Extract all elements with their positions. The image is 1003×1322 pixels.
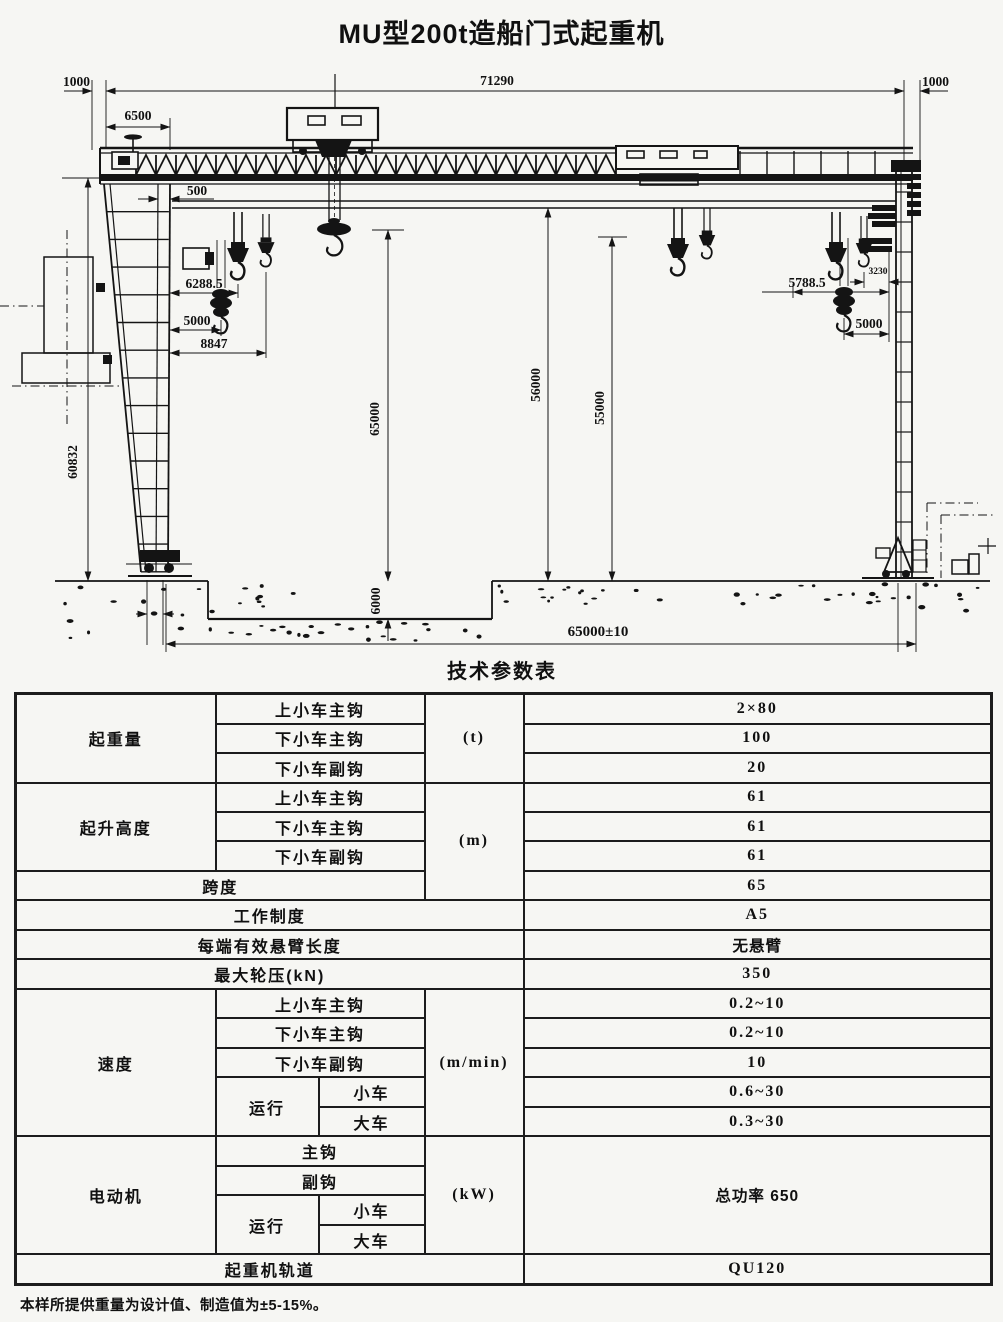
dim-hook-right-small: 3230 <box>869 267 888 277</box>
hook-icon <box>667 208 689 275</box>
table-row: 起重机轨道 QU120 <box>16 1254 992 1284</box>
value-cell: 0.6~30 <box>524 1077 992 1106</box>
value-cell: 0.2~10 <box>524 989 992 1018</box>
group-height: 起升高度 <box>16 783 216 871</box>
table-row: 工作制度 A5 <box>16 900 992 929</box>
table-row: 起重量 上小车主钩 (t) 2×80 <box>16 694 992 724</box>
dim-overall: 71290 <box>480 73 514 88</box>
unit-label: (kW) <box>425 1136 524 1254</box>
item-label: 下小车副钩 <box>216 1048 425 1077</box>
dim-height-mid: 56000 <box>528 368 543 402</box>
table-row: 速度 上小车主钩 (m/min) 0.2~10 <box>16 989 992 1018</box>
value-cell: 61 <box>524 783 992 812</box>
rail-end-stop <box>112 134 142 169</box>
item-travel: 运行 <box>216 1195 319 1254</box>
value-cell: 2×80 <box>524 694 992 724</box>
group-duty: 工作制度 <box>16 900 524 929</box>
lower-runway-beam <box>172 201 896 208</box>
group-rail: 起重机轨道 <box>16 1254 524 1284</box>
right-leg <box>862 160 996 578</box>
group-capacity: 起重量 <box>16 694 216 783</box>
value-cell: 无悬臂 <box>524 930 992 959</box>
main-girder <box>100 148 913 184</box>
item-label: 下小车副钩 <box>216 753 425 782</box>
unit-label: (m/min) <box>425 989 524 1136</box>
value-cell: 61 <box>524 812 992 841</box>
dimensions: 1000 71290 1000 6500 500 6288.5 5000 884… <box>62 73 949 652</box>
item-travel: 运行 <box>216 1077 319 1136</box>
hook-icon <box>227 212 249 279</box>
group-speed: 速度 <box>16 989 216 1136</box>
table-row: 电动机 主钩 (kW) 总功率 650 <box>16 1136 992 1165</box>
dim-overhang-left: 1000 <box>63 74 90 89</box>
dim-rail-offset: 500 <box>187 183 208 198</box>
value-cell: 61 <box>524 841 992 870</box>
group-cantilever: 每端有效悬臂长度 <box>16 930 524 959</box>
value-cell: QU120 <box>524 1254 992 1284</box>
item-label: 大车 <box>319 1225 425 1254</box>
value-cell: 10 <box>524 1048 992 1077</box>
dim-hook-right-aux: 5000 <box>856 316 883 331</box>
value-cell: 65 <box>524 871 992 900</box>
upper-trolley-hook-icon <box>317 218 351 255</box>
dim-height-right: 55000 <box>592 391 607 425</box>
dim-rail-span: 65000±10 <box>568 624 629 640</box>
parameters-table: 起重量 上小车主钩 (t) 2×80 下小车主钩 100 下小车副钩 20 起升… <box>14 692 993 1286</box>
table-row: 起升高度 上小车主钩 (m) 61 <box>16 783 992 812</box>
value-cell: 总功率 650 <box>524 1136 992 1254</box>
item-label: 下小车主钩 <box>216 812 425 841</box>
item-label: 副钩 <box>216 1166 425 1195</box>
group-motor: 电动机 <box>16 1136 216 1254</box>
dim-pit-depth: 6000 <box>368 587 383 614</box>
item-label: 下小车主钩 <box>216 1018 425 1047</box>
item-label: 上小车主钩 <box>216 783 425 812</box>
ground <box>55 581 990 642</box>
left-leg <box>96 184 214 645</box>
value-cell: 20 <box>524 753 992 782</box>
dim-hoist-mid: 65000 <box>367 402 382 436</box>
item-label: 小车 <box>319 1195 425 1224</box>
item-label: 下小车主钩 <box>216 724 425 753</box>
item-label: 下小车副钩 <box>216 841 425 870</box>
dim-hook-left-outer: 8847 <box>201 336 228 351</box>
value-cell: 0.3~30 <box>524 1107 992 1136</box>
unit-label: (t) <box>425 694 524 783</box>
dim-hook-left-main: 6288.5 <box>185 276 222 291</box>
dim-trolley-park: 6500 <box>125 108 152 123</box>
table-title: 技术参数表 <box>14 655 990 684</box>
dim-overhang-right: 1000 <box>922 74 949 89</box>
value-cell: 0.2~10 <box>524 1018 992 1047</box>
value-cell: 350 <box>524 959 992 988</box>
table-row: 最大轮压(kN) 350 <box>16 959 992 988</box>
dock-pit <box>208 581 492 619</box>
group-wheel-load: 最大轮压(kN) <box>16 959 524 988</box>
item-label: 上小车主钩 <box>216 694 425 724</box>
table-row: 每端有效悬臂长度 无悬臂 <box>16 930 992 959</box>
dim-hook-right-main: 5788.5 <box>788 275 825 290</box>
lower-trolley-hooks <box>210 208 872 333</box>
item-label: 小车 <box>319 1077 425 1106</box>
value-cell: A5 <box>524 900 992 929</box>
crane-elevation-drawing: 1000 71290 1000 6500 500 6288.5 5000 884… <box>0 0 1003 660</box>
catalog-page: { "title": "MU型200t造船门式起重机", "dims": { "… <box>0 0 1003 1322</box>
quay-structure <box>0 230 120 425</box>
item-label: 大车 <box>319 1107 425 1136</box>
footnote: 本样所提供重量为设计值、制造值为±5-15%。 <box>20 1294 328 1315</box>
item-label: 上小车主钩 <box>216 989 425 1018</box>
group-span: 跨度 <box>16 871 425 900</box>
dim-hook-left-aux: 5000 <box>184 313 211 328</box>
dim-height-left: 60832 <box>65 445 80 479</box>
value-cell: 100 <box>524 724 992 753</box>
hook-icon <box>699 208 716 259</box>
item-label: 主钩 <box>216 1136 425 1165</box>
hook-icon <box>825 212 847 279</box>
unit-label: (m) <box>425 783 524 901</box>
hook-icon <box>257 214 274 267</box>
